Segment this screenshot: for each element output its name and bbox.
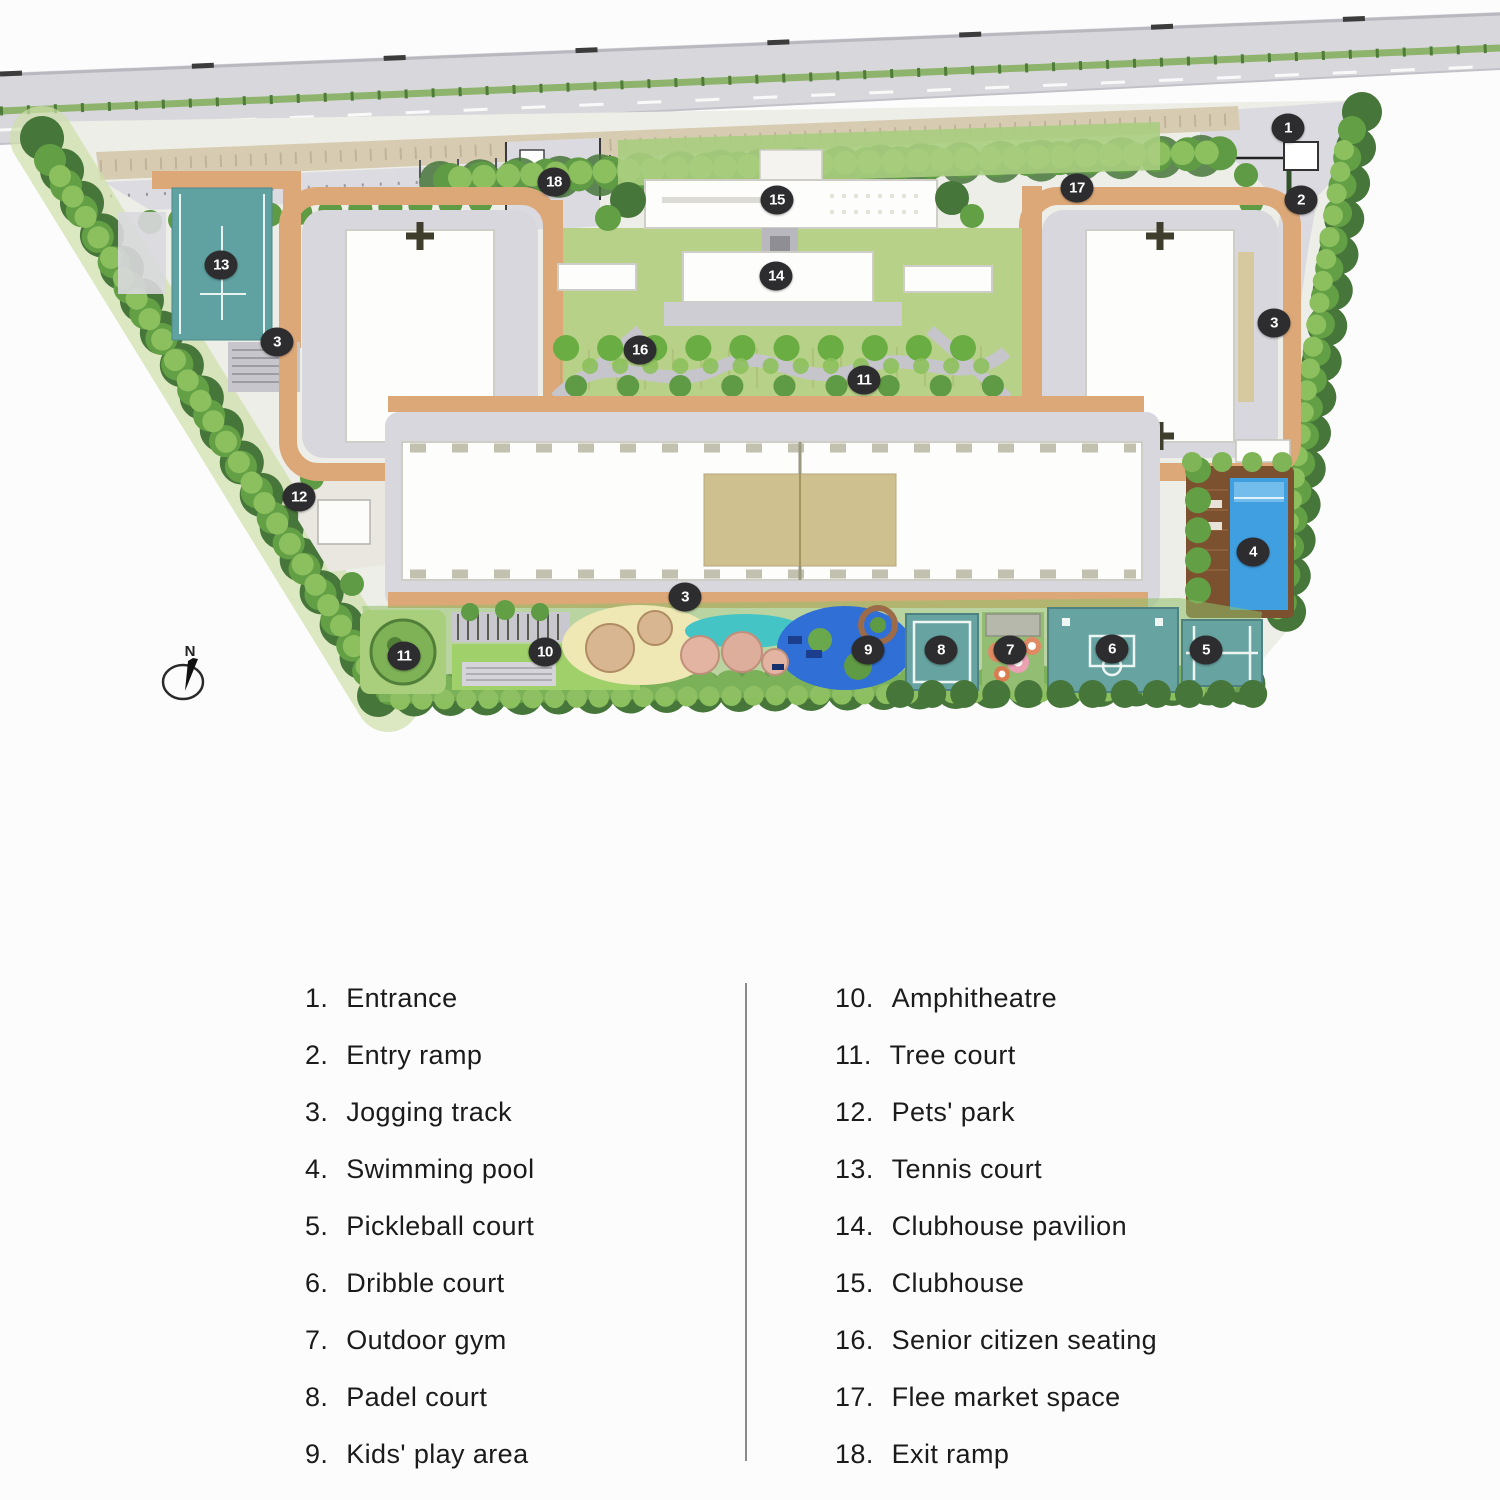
legend-item: 8. Padel court [305,1384,535,1411]
plan-marker: 3 [1258,309,1291,338]
plan-marker-number: 3 [1270,315,1278,332]
plan-marker: 18 [538,168,571,197]
legend-item-label: Tennis court [892,1156,1042,1183]
plan-marker: 1 [1272,114,1305,143]
legend-item-number: 1. [305,985,328,1012]
plan-marker-number: 4 [1249,544,1257,561]
senior-seating-garden [556,330,1008,402]
master-plan-map: N 1 2 3 13 3 12 18 15 [0,0,1500,760]
plan-marker-number: 7 [1006,642,1014,659]
legend-item-label: Amphitheatre [892,985,1057,1012]
legend-item: 15. Clubhouse [835,1270,1157,1297]
legend-item: 13. Tennis court [835,1156,1157,1183]
compass-north-label: N [185,643,196,660]
legend-item-number: 18. [835,1441,874,1468]
legend-item: 18. Exit ramp [835,1441,1157,1468]
plan-marker-number: 16 [632,342,648,359]
plan-marker: 13 [205,251,238,280]
legend-item-number: 11. [835,1042,872,1069]
plan-marker: 8 [925,636,958,665]
legend-item-label: Jogging track [346,1099,512,1126]
plan-marker: 11 [388,642,421,671]
plan-marker: 7 [994,636,1027,665]
legend-item-number: 10. [835,985,874,1012]
legend-left-column: 1. Entrance 2. Entry ramp 3. Jogging tra… [305,985,535,1498]
legend-item-label: Tree court [890,1042,1016,1069]
legend-item-number: 3. [305,1099,328,1126]
plan-marker-number: 5 [1202,642,1210,659]
plan-marker: 3 [669,583,702,612]
legend-item-label: Swimming pool [346,1156,534,1183]
plan-marker-number: 11 [397,648,412,665]
legend-item-label: Kids' play area [346,1441,528,1468]
legend-item-number: 6. [305,1270,328,1297]
legend-item: 5. Pickleball court [305,1213,535,1240]
north-compass: N [163,643,203,699]
legend-item: 7. Outdoor gym [305,1327,535,1354]
legend-item: 2. Entry ramp [305,1042,535,1069]
legend-item: 1. Entrance [305,985,535,1012]
plan-marker-number: 2 [1297,192,1305,209]
legend-right-column: 10. Amphitheatre 11. Tree court 12. Pets… [835,985,1157,1498]
plan-marker-number: 17 [1069,180,1085,197]
plan-marker: 17 [1061,174,1094,203]
legend-item-label: Outdoor gym [346,1327,506,1354]
legend-item: 3. Jogging track [305,1099,535,1126]
legend-item: 6. Dribble court [305,1270,535,1297]
legend-item-label: Padel court [346,1384,487,1411]
site-plan-page: N 1 2 3 13 3 12 18 15 [0,0,1500,1500]
legend-item-number: 7. [305,1327,328,1354]
legend-item: 9. Kids' play area [305,1441,535,1468]
legend-item-number: 8. [305,1384,328,1411]
legend-item-label: Pets' park [892,1099,1015,1126]
plan-marker: 3 [261,328,294,357]
legend-item-number: 16. [835,1327,874,1354]
plan-marker: 2 [1285,186,1318,215]
master-plan-art: N [0,0,1500,760]
plan-marker: 6 [1096,635,1129,664]
legend-item: 10. Amphitheatre [835,985,1157,1012]
plan-marker-number: 1 [1284,120,1292,137]
plan-marker-number: 13 [213,257,229,274]
legend-item-label: Senior citizen seating [892,1327,1157,1354]
plan-marker-number: 3 [273,334,281,351]
legend-item-number: 12. [835,1099,874,1126]
plan-marker: 12 [283,483,316,512]
legend: 1. Entrance 2. Entry ramp 3. Jogging tra… [0,975,1500,1480]
plan-marker: 5 [1190,636,1223,665]
legend-item-number: 9. [305,1441,328,1468]
plan-marker-number: 8 [937,642,945,659]
legend-item-label: Pickleball court [346,1213,534,1240]
compass-needle [185,658,198,691]
legend-item-label: Exit ramp [892,1441,1010,1468]
plan-marker: 10 [529,638,562,667]
legend-divider [745,983,747,1461]
plan-marker-number: 18 [546,174,562,191]
plan-marker: 4 [1237,538,1270,567]
plan-marker: 16 [624,336,657,365]
legend-item: 4. Swimming pool [305,1156,535,1183]
legend-item-number: 14. [835,1213,874,1240]
legend-item: 14. Clubhouse pavilion [835,1213,1157,1240]
plan-marker: 14 [760,262,793,291]
legend-item-number: 2. [305,1042,328,1069]
legend-item-number: 5. [305,1213,328,1240]
plan-marker-number: 12 [291,489,307,506]
legend-item-label: Entrance [346,985,457,1012]
legend-item: 17. Flee market space [835,1384,1157,1411]
legend-item-number: 4. [305,1156,328,1183]
legend-item-number: 15. [835,1270,874,1297]
plan-marker-number: 9 [864,642,872,659]
plan-marker: 11 [848,366,881,395]
legend-item-label: Clubhouse [892,1270,1025,1297]
plan-marker-number: 10 [537,644,553,661]
swimming-pool-block [1186,440,1294,618]
legend-item: 11. Tree court [835,1042,1157,1069]
legend-item-label: Entry ramp [346,1042,482,1069]
legend-item-number: 17. [835,1384,874,1411]
plan-marker: 15 [761,186,794,215]
plan-marker-number: 3 [681,589,689,606]
plan-marker: 9 [852,636,885,665]
plan-marker-number: 11 [857,372,872,389]
legend-item: 16. Senior citizen seating [835,1327,1157,1354]
legend-item-label: Clubhouse pavilion [892,1213,1127,1240]
legend-item-label: Flee market space [892,1384,1121,1411]
legend-item-label: Dribble court [346,1270,504,1297]
entrance-gate-booth [1284,142,1318,170]
legend-item-number: 13. [835,1156,874,1183]
long-residential-building [385,396,1160,608]
plan-marker-number: 14 [768,268,784,285]
legend-item: 12. Pets' park [835,1099,1157,1126]
plan-marker-number: 15 [769,192,785,209]
plan-marker-number: 6 [1108,641,1116,658]
